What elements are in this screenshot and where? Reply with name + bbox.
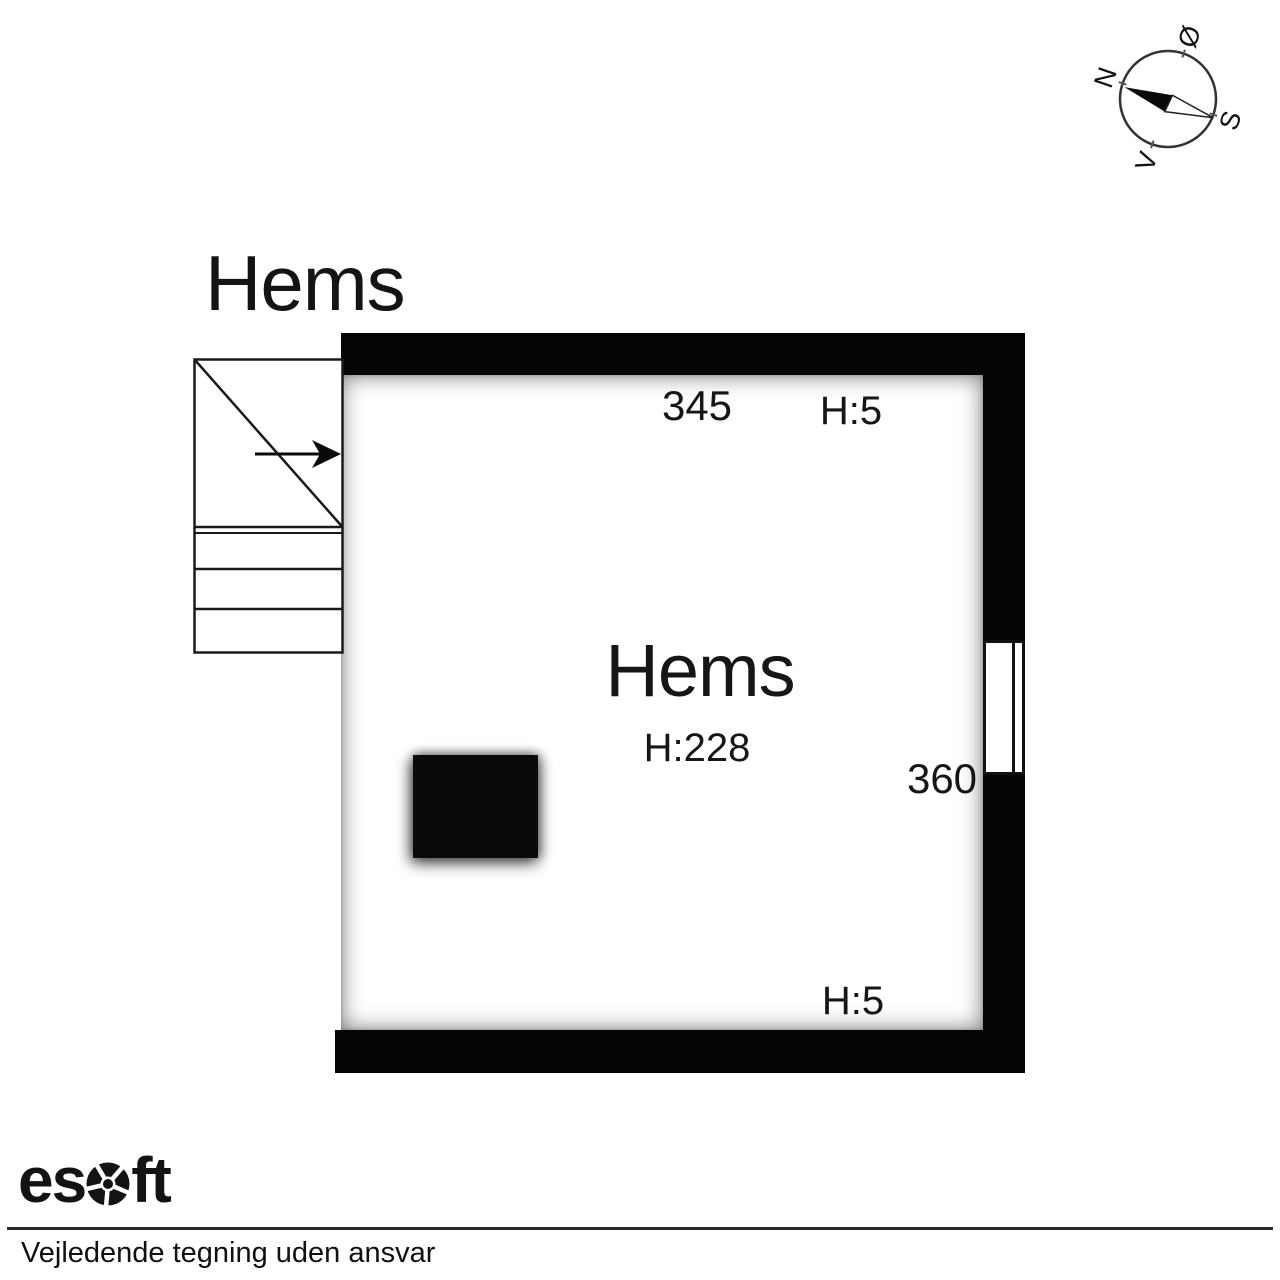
page-title: Hems <box>205 238 405 329</box>
wall-right-lower <box>983 775 1025 1073</box>
compass-label-south: S <box>1213 107 1247 134</box>
stairs-icon <box>193 358 344 655</box>
wall-right-upper <box>983 333 1025 640</box>
wall-bottom <box>335 1030 1025 1073</box>
logo-text-es: es <box>18 1150 85 1211</box>
room-height-label: H:228 <box>644 726 751 771</box>
dimension-top-label: 345 <box>662 382 732 430</box>
window-pane-divider <box>1012 643 1015 772</box>
window-icon <box>983 640 1025 775</box>
room-name-label: Hems <box>605 628 794 713</box>
chimney-block <box>413 755 538 858</box>
disclaimer-text: Vejledende tegning uden ansvar <box>21 1237 435 1270</box>
ceiling-height-bottom-label: H:5 <box>822 979 884 1024</box>
esoft-logo: es ft <box>18 1150 170 1211</box>
compass-label-east: Ø <box>1172 22 1207 52</box>
compass-tick-north <box>1119 82 1127 85</box>
esoft-gear-icon <box>84 1160 132 1208</box>
ceiling-height-top-label: H:5 <box>820 389 882 434</box>
compass-label-north: N <box>1088 63 1123 91</box>
compass-tick-east <box>1182 50 1185 58</box>
compass-needle-north <box>1121 80 1172 113</box>
compass-label-west: V <box>1129 148 1163 175</box>
floor-plan-page: Hems N Ø S V <box>0 0 1280 1280</box>
compass-tick-west <box>1151 141 1154 149</box>
logo-text-ft: ft <box>131 1150 170 1211</box>
dimension-right-label: 360 <box>907 755 977 803</box>
compass-rose-icon: N Ø S V <box>1086 17 1250 181</box>
compass-needle-south <box>1165 95 1216 128</box>
footer-divider-line <box>7 1227 1273 1230</box>
wall-top <box>341 333 1025 375</box>
